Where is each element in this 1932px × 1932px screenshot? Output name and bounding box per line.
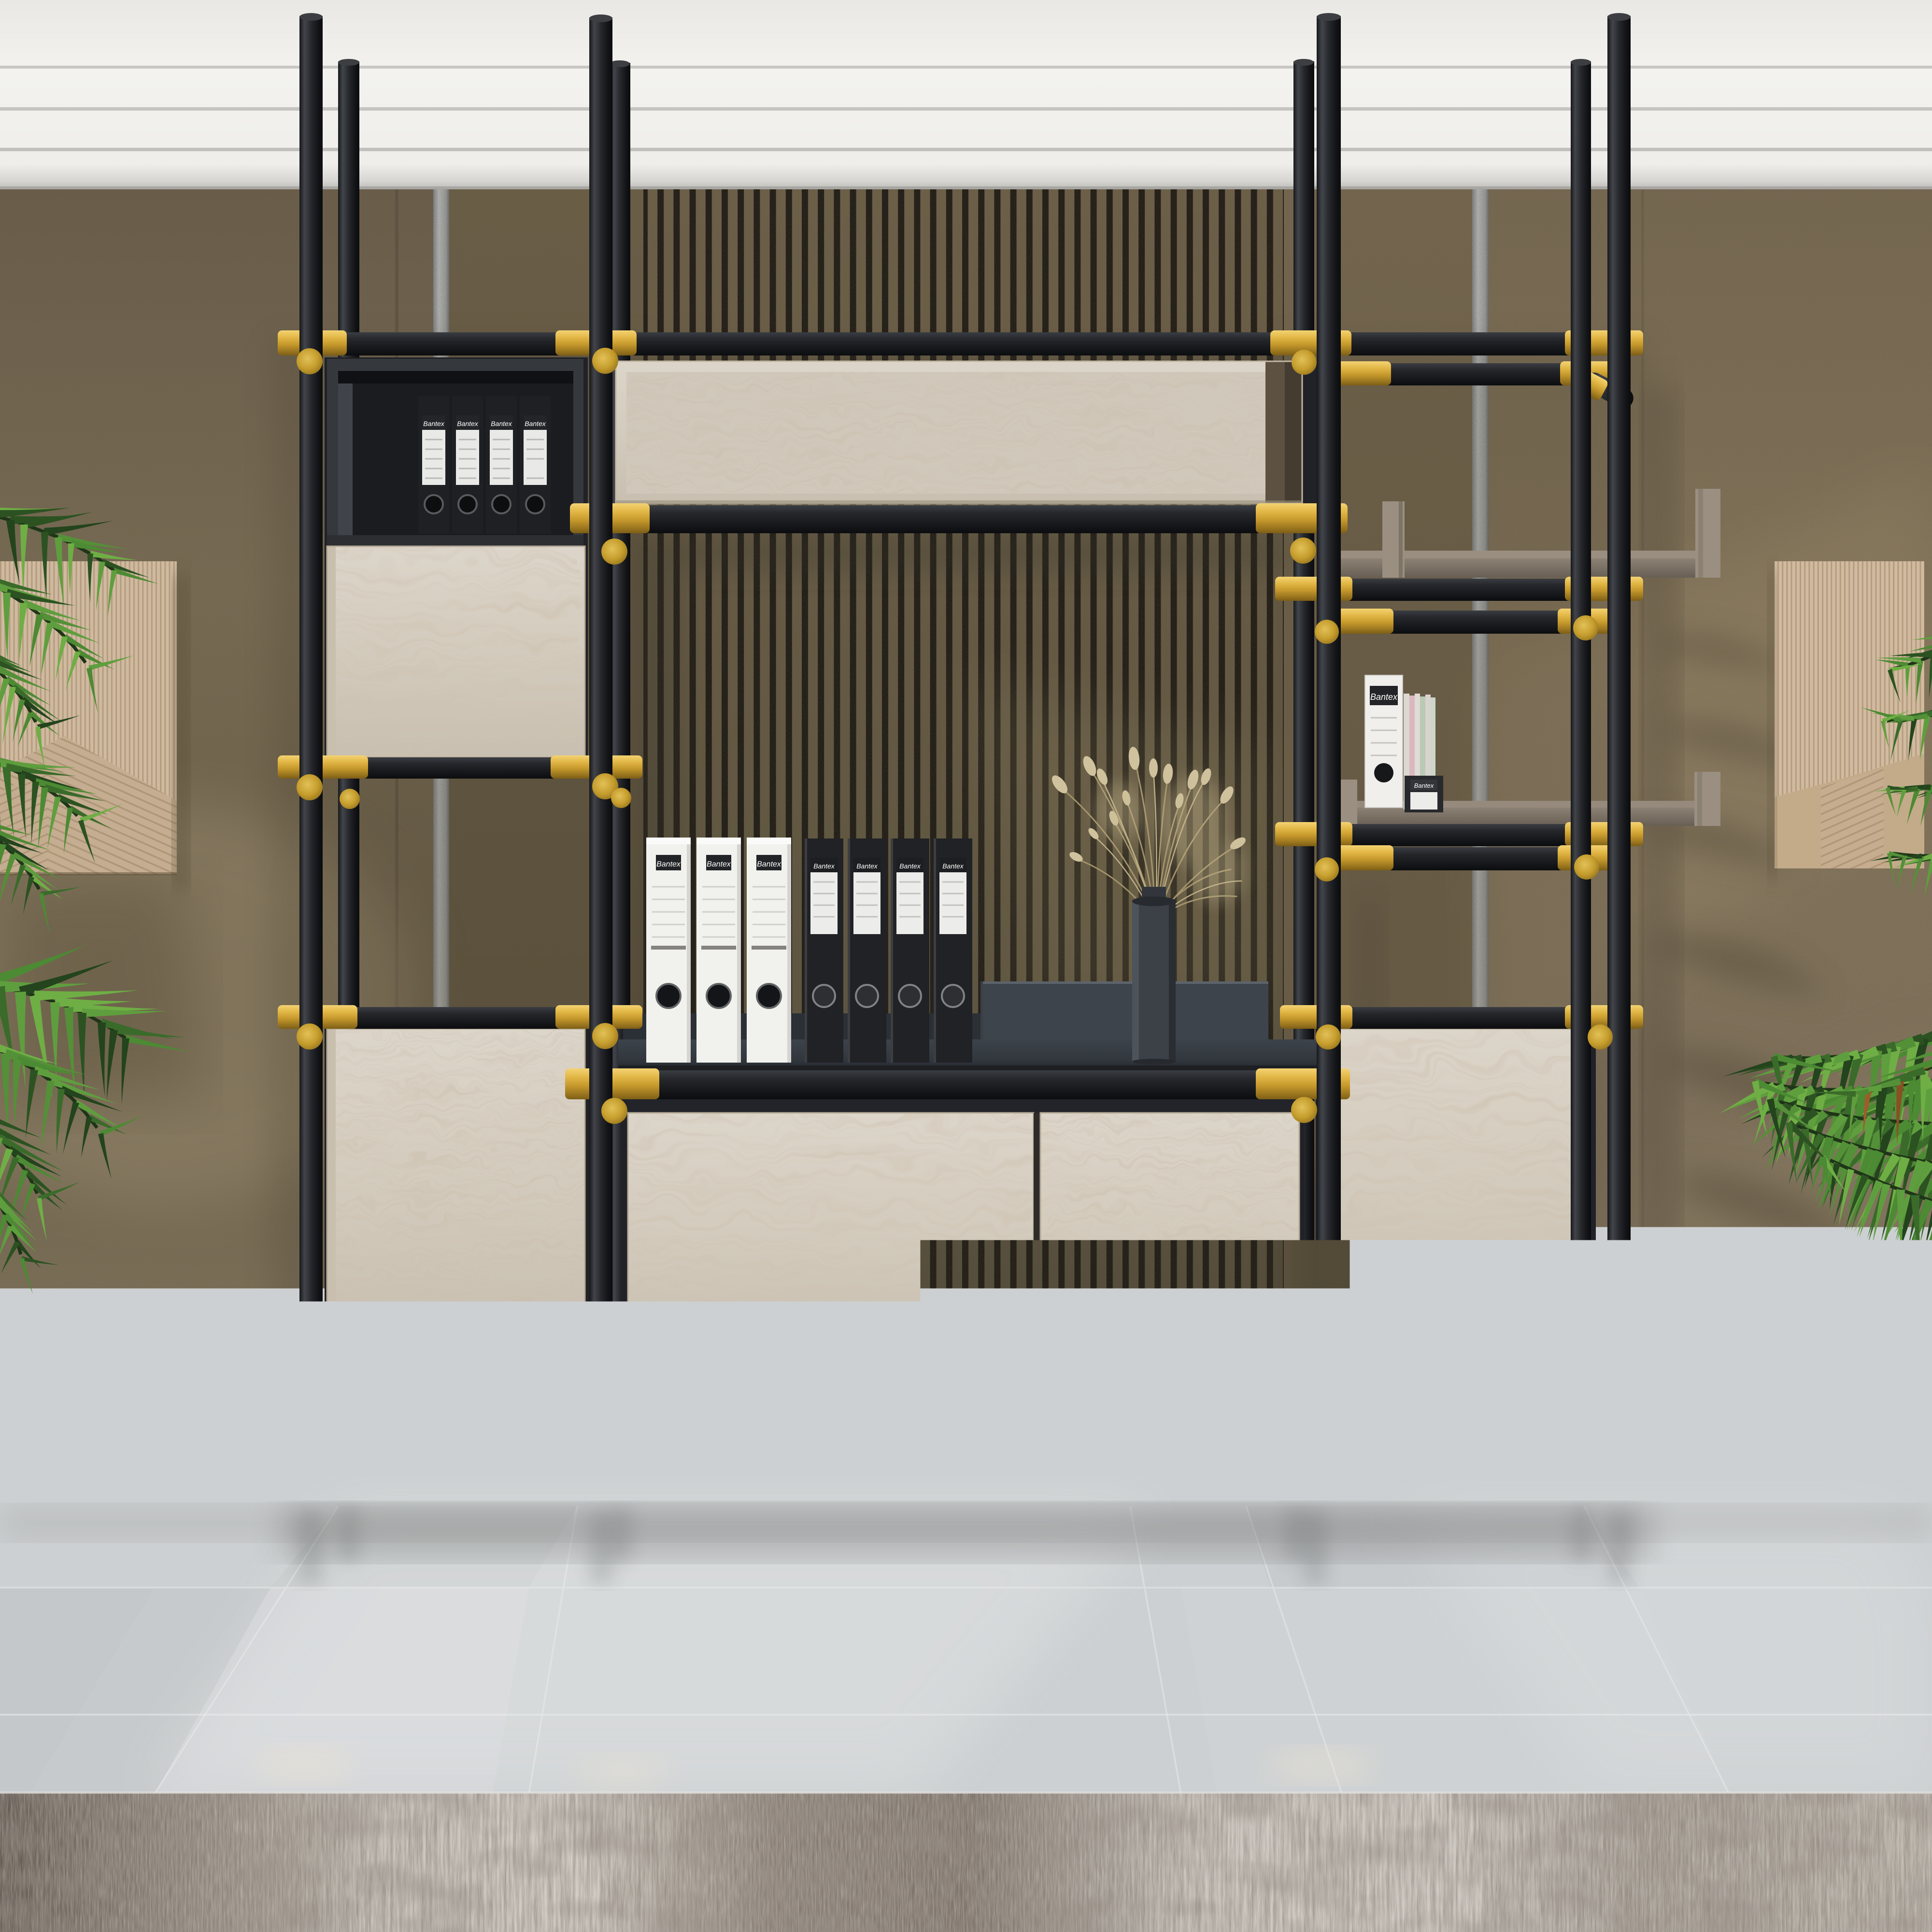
svg-text:Bantex: Bantex	[856, 862, 878, 870]
svg-text:Bantex: Bantex	[423, 420, 445, 427]
svg-text:Bantex: Bantex	[757, 860, 781, 868]
svg-text:Bantex: Bantex	[1370, 692, 1398, 702]
svg-text:Bantex: Bantex	[707, 860, 731, 868]
svg-text:Bantex: Bantex	[457, 420, 479, 427]
svg-text:Bantex: Bantex	[525, 420, 546, 427]
svg-text:Bantex: Bantex	[813, 862, 835, 870]
svg-text:Bantex: Bantex	[1414, 782, 1434, 789]
svg-text:Bantex: Bantex	[942, 862, 964, 870]
svg-text:Bantex: Bantex	[656, 860, 681, 868]
svg-text:Bantex: Bantex	[491, 420, 512, 427]
svg-text:Bantex: Bantex	[899, 862, 921, 870]
